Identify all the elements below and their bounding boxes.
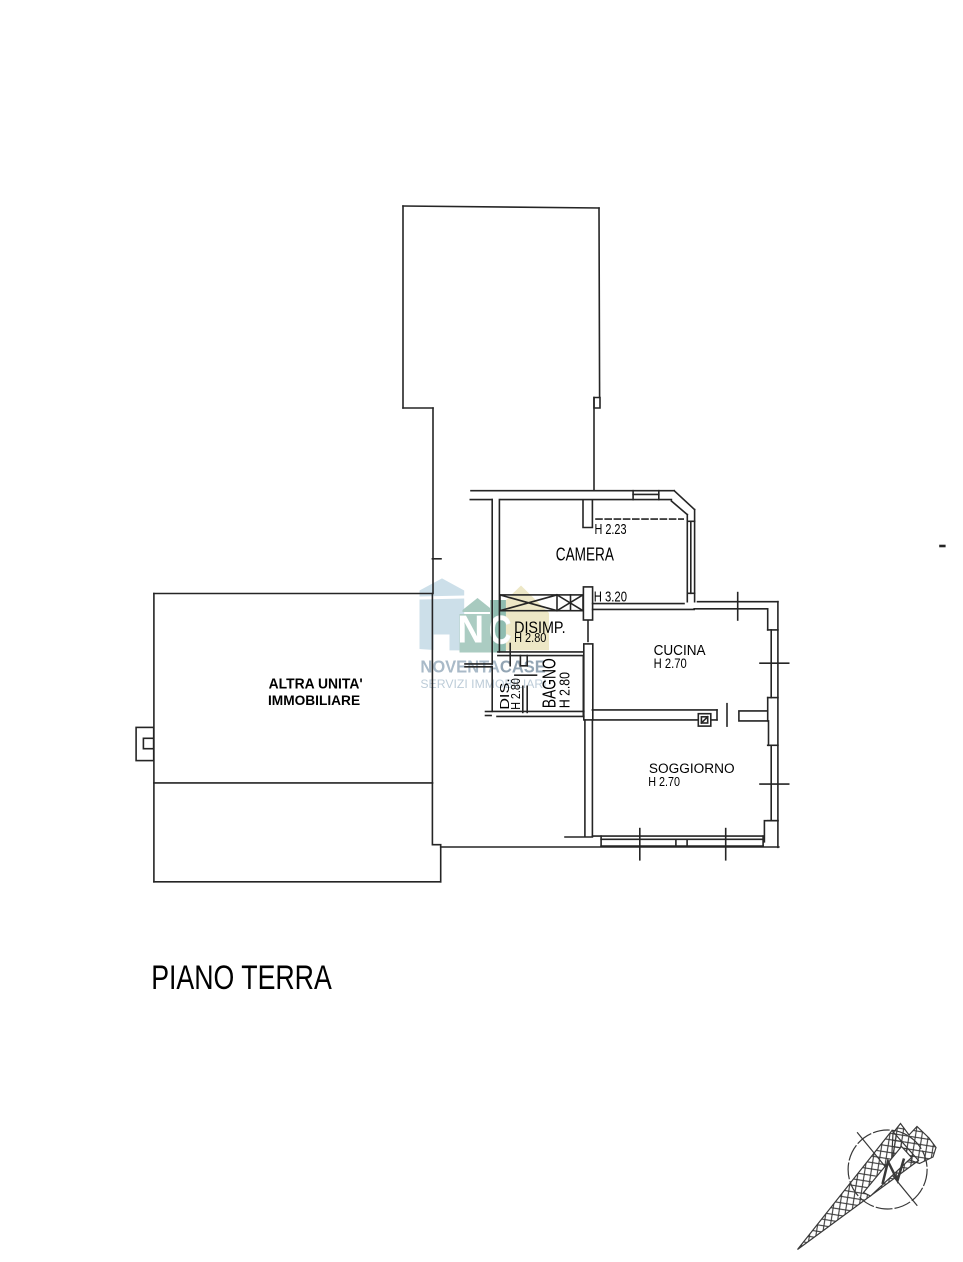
svg-text:H 3.20: H 3.20 (594, 589, 627, 606)
svg-text:PIANO TERRA: PIANO TERRA (151, 959, 332, 997)
svg-text:H 2.23: H 2.23 (595, 521, 627, 538)
svg-text:H 2.80: H 2.80 (508, 678, 523, 710)
svg-text:H 2.80: H 2.80 (558, 672, 574, 708)
svg-text:ALTRA UNITA': ALTRA UNITA' (269, 676, 363, 692)
svg-text:H 2.70: H 2.70 (654, 655, 687, 671)
svg-text:H 2.70: H 2.70 (648, 774, 680, 789)
svg-text:N: N (458, 609, 485, 652)
svg-text:IMMOBILIARE: IMMOBILIARE (268, 692, 360, 708)
svg-text:H 2.80: H 2.80 (514, 630, 546, 645)
svg-text:CAMERA: CAMERA (556, 544, 615, 565)
svg-text:BAGNO: BAGNO (540, 658, 560, 708)
